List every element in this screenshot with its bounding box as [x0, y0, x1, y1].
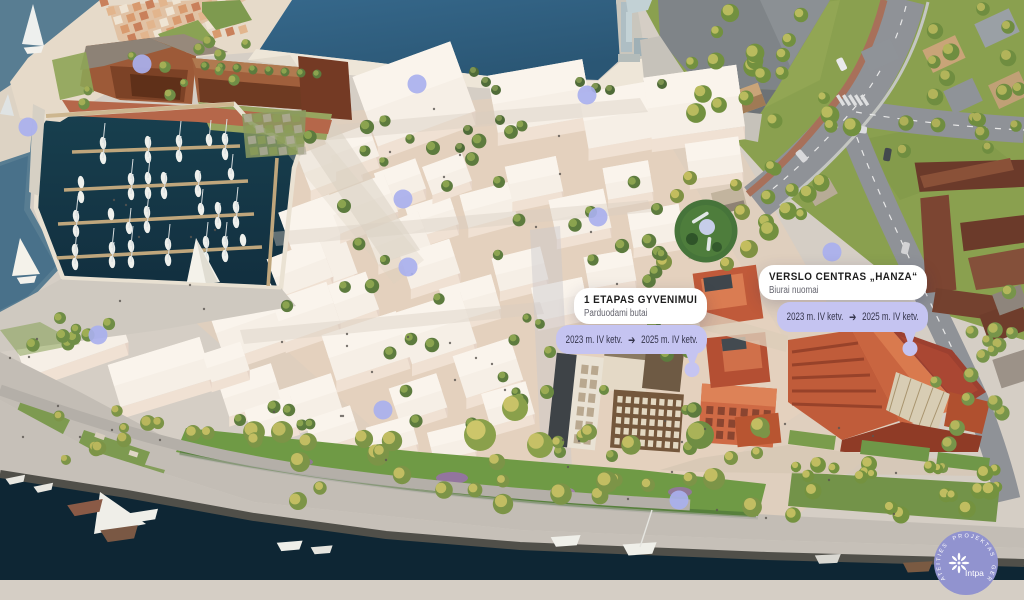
svg-text:Intpa: Intpa: [965, 568, 984, 578]
